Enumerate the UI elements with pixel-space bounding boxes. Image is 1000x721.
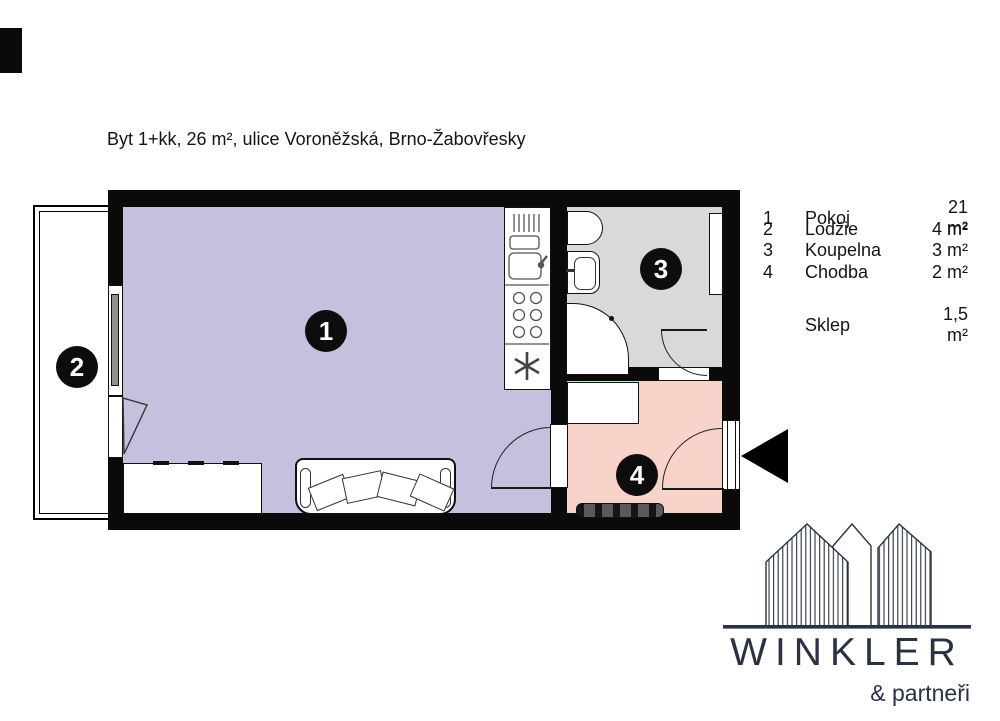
door-bath-hall-leaf [661, 329, 707, 331]
window-loggia-glass [111, 294, 119, 386]
kitchenette-fixtures-icon [505, 208, 549, 388]
legend-room-number: 3 [763, 240, 805, 261]
legend-room-area: 3 m² [925, 240, 968, 261]
legend: 1 Pokoj 21 m² 2 Lodžie 4 m² 3 Koupelna 3… [763, 197, 968, 326]
radiator-icon [576, 503, 664, 518]
logo-tagline: & partneři [721, 680, 970, 707]
entrance-arrow-icon [741, 429, 788, 483]
wall-mid-vertical-lower [551, 488, 567, 513]
entry-door-leaf [662, 488, 724, 490]
kitchenette [504, 207, 551, 390]
legend-room-label: Lodžie [805, 219, 925, 240]
legend-room-label: Koupelna [805, 240, 925, 261]
legend-cellar-label: Sklep [805, 315, 925, 336]
logo-houses-icon [721, 516, 973, 630]
door-room1-hall-threshold [550, 424, 568, 488]
washbasin-icon [567, 251, 600, 294]
legend-room-number: 4 [763, 262, 805, 283]
door-room1-hall-leaf [491, 487, 551, 489]
page-corner-mark [0, 28, 22, 73]
room-badge-3: 3 [640, 248, 682, 290]
logo-wordmark: WINKLER [721, 631, 973, 675]
page-title: Byt 1+kk, 26 m², ulice Voroněžská, Brno-… [107, 129, 526, 150]
legend-row: 4 Chodba 2 m² [763, 262, 968, 284]
legend-row: 2 Lodžie 4 m² [763, 219, 968, 241]
room-badge-1: 1 [305, 310, 347, 352]
balcony-door-swing-icon [120, 394, 154, 458]
legend-row: 1 Pokoj 21 m² [763, 197, 968, 219]
legend-room-area: 2 m² [925, 262, 968, 283]
toilet-icon [567, 211, 603, 245]
legend-spacer [763, 283, 968, 304]
legend-row: 3 Koupelna 3 m² [763, 240, 968, 262]
wall-bath-hall-right [710, 367, 740, 381]
legend-room-area: 4 m² [925, 219, 968, 240]
entry-door-threshold [722, 420, 740, 490]
legend-cellar-area: 1,5 m² [925, 304, 968, 346]
hall-wardrobe [567, 382, 639, 424]
legend-room-label: Chodba [805, 262, 925, 283]
legend-room-number: 2 [763, 219, 805, 240]
wardrobe [123, 463, 262, 514]
wall-top [108, 190, 740, 207]
sofa [295, 458, 456, 515]
wall-left-upper [108, 190, 123, 287]
floorplan-page: Byt 1+kk, 26 m², ulice Voroněžská, Brno-… [0, 0, 1000, 721]
room-badge-4: 4 [616, 454, 658, 496]
fridge-star-icon [515, 352, 539, 380]
bathroom-window-icon [709, 213, 723, 295]
wall-mid-vertical-upper [551, 190, 567, 424]
legend-row-cellar: Sklep 1,5 m² [763, 304, 968, 326]
room-badge-2: 2 [56, 346, 98, 388]
wall-left-lower [108, 458, 123, 530]
